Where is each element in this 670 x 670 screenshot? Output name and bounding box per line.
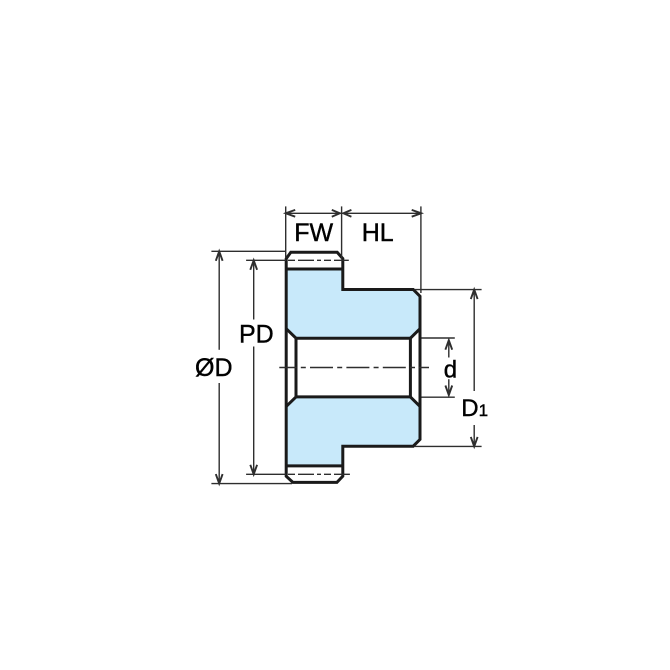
svg-text:FW: FW xyxy=(294,219,333,247)
svg-text:HL: HL xyxy=(362,219,394,247)
svg-text:d: d xyxy=(444,357,457,384)
svg-text:ØD: ØD xyxy=(195,354,233,382)
svg-text:PD: PD xyxy=(239,320,274,348)
